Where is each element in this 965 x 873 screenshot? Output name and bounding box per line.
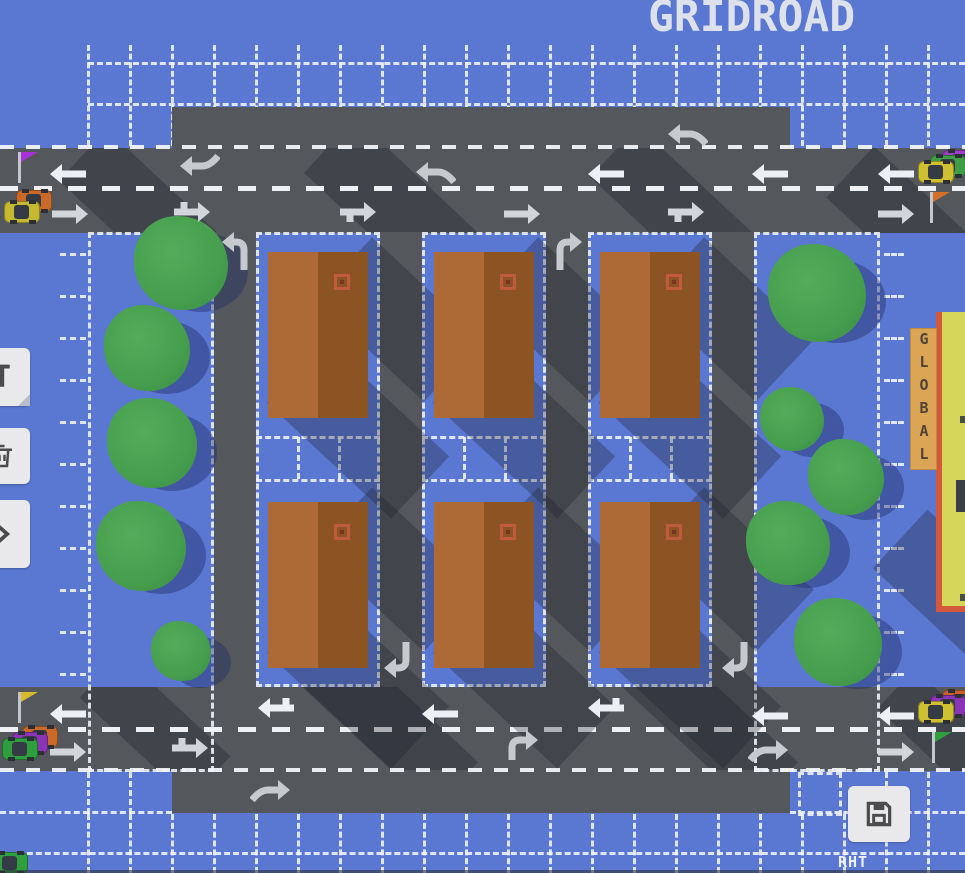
flag-pennant — [21, 152, 38, 162]
car — [2, 738, 38, 760]
car-group — [2, 726, 72, 766]
cell-divider — [297, 437, 300, 479]
grid-tick — [884, 337, 904, 340]
global-building — [936, 312, 965, 612]
grid-line — [87, 772, 90, 814]
building-vent-core — [506, 280, 510, 284]
grid-tick — [60, 463, 86, 466]
tree — [96, 501, 186, 591]
flag-pennant — [21, 692, 38, 702]
grid-line — [801, 45, 804, 146]
grid-line — [885, 45, 888, 146]
car-wheel — [0, 851, 5, 855]
grid-line — [633, 814, 636, 873]
arrow-turn-en[interactable] — [500, 722, 544, 766]
expand-button[interactable] — [0, 500, 30, 568]
car-cabin — [2, 856, 17, 870]
grid-tick — [884, 379, 904, 382]
car-wheel — [943, 180, 950, 184]
folded-corner — [18, 394, 30, 406]
cell-divider — [463, 437, 466, 479]
car-wheel — [41, 189, 48, 193]
grid-line — [843, 45, 846, 146]
car-wheel — [22, 189, 29, 193]
car-wheel — [955, 694, 962, 698]
building — [434, 252, 534, 418]
grid-line — [927, 814, 930, 873]
grid-tick — [60, 631, 86, 634]
center-line — [0, 186, 965, 191]
building — [600, 252, 700, 418]
game-title: GRIDROAD — [648, 0, 855, 42]
car-wheel — [955, 174, 962, 178]
grid-line — [255, 814, 258, 873]
car-wheel — [936, 694, 943, 698]
car-wheel — [27, 757, 34, 761]
car-wheel — [924, 700, 931, 704]
arrow-e-tick-down[interactable] — [664, 190, 708, 234]
flag-pennant — [935, 732, 952, 742]
car-wheel — [955, 154, 962, 158]
arrow-merge-w[interactable] — [664, 112, 708, 156]
grid-line — [759, 814, 762, 873]
arrow-hook-w-up[interactable] — [176, 144, 220, 188]
tree — [151, 621, 211, 681]
car — [918, 701, 954, 723]
road-edge-line — [0, 145, 965, 149]
grid-line — [465, 814, 468, 873]
building-vent-core — [672, 280, 676, 284]
save-cell[interactable] — [798, 772, 842, 816]
grid-line — [339, 814, 342, 873]
building-vent — [500, 274, 516, 290]
car-wheel — [948, 689, 955, 693]
building-window — [956, 480, 965, 512]
cell-divider — [629, 437, 632, 479]
arrow-e-tick-up[interactable] — [168, 726, 212, 770]
building-detail — [960, 594, 965, 601]
grid-line — [927, 772, 930, 814]
car-wheel — [924, 180, 931, 184]
building-vent — [666, 524, 682, 540]
building — [434, 502, 534, 668]
tree — [107, 398, 197, 488]
car-wheel — [955, 714, 962, 718]
grid-tick — [884, 295, 904, 298]
delete-button[interactable] — [0, 428, 30, 484]
text-tool-button[interactable]: T — [0, 348, 30, 406]
car-wheel — [27, 737, 34, 741]
flag-pennant — [933, 192, 950, 202]
grid-tick — [60, 379, 86, 382]
tree — [794, 598, 882, 686]
car-wheel — [18, 731, 25, 735]
arrow-merge-e[interactable] — [748, 728, 792, 772]
grid-line — [381, 814, 384, 873]
building-vent-core — [506, 530, 510, 534]
tree — [808, 439, 884, 515]
grid-line — [129, 814, 132, 873]
building-vent-core — [340, 530, 344, 534]
building — [600, 502, 700, 668]
car-wheel — [943, 720, 950, 724]
grid-line — [171, 814, 174, 873]
car-cabin — [928, 705, 943, 719]
flag-green — [930, 732, 954, 766]
car-wheel — [8, 757, 15, 761]
grid-tick — [60, 589, 86, 592]
building-vent-core — [340, 280, 344, 284]
car-wheel — [948, 149, 955, 153]
arrow-turn-ne[interactable] — [548, 228, 592, 272]
game-canvas: GRIDROAD GLOBAL T RHT — [0, 0, 965, 873]
car-wheel — [37, 751, 44, 755]
text-cursor-icon: T — [0, 360, 11, 395]
grid-line — [549, 814, 552, 873]
building-vent — [334, 274, 350, 290]
flag-purple — [16, 152, 40, 186]
arrow-merge-e[interactable] — [250, 768, 294, 812]
car — [918, 161, 954, 183]
car-group — [918, 690, 965, 730]
grid-line — [87, 45, 90, 146]
grid-tick — [60, 505, 86, 508]
car-group — [4, 190, 74, 230]
grid-tick — [60, 337, 86, 340]
grid-line — [801, 814, 804, 873]
car-wheel — [17, 851, 24, 855]
tree — [760, 387, 824, 451]
grid-tick — [60, 547, 86, 550]
grid-line — [927, 45, 930, 146]
grid-line — [129, 772, 132, 814]
car-wheel — [924, 720, 931, 724]
car-cabin — [928, 165, 943, 179]
car-wheel — [8, 737, 15, 741]
car — [4, 201, 40, 223]
car-wheel — [29, 200, 36, 204]
arrow-w-tick-up[interactable] — [584, 686, 628, 730]
car-wheel — [29, 220, 36, 224]
grid-tick — [60, 421, 86, 424]
car-cabin — [12, 742, 27, 756]
grid-tick — [884, 253, 904, 256]
tree — [746, 501, 830, 585]
car-wheel — [10, 220, 17, 224]
building-vent — [500, 524, 516, 540]
car-cabin — [14, 205, 29, 219]
arrow-w[interactable] — [874, 152, 918, 196]
arrow-e-tick-down[interactable] — [336, 190, 380, 234]
arrow-turn-sw[interactable] — [378, 640, 422, 684]
arrow-w[interactable] — [748, 152, 792, 196]
grid-line — [88, 62, 965, 65]
grid-line — [507, 814, 510, 873]
car-wheel — [41, 209, 48, 213]
grid-line — [717, 814, 720, 873]
arrow-e[interactable] — [874, 192, 918, 236]
grid-line — [675, 814, 678, 873]
building-vent — [334, 524, 350, 540]
arrow-e-tick-up[interactable] — [170, 190, 214, 234]
arrow-turn-sw[interactable] — [716, 640, 760, 684]
arrow-w-tick-up[interactable] — [254, 686, 298, 730]
arrow-e[interactable] — [500, 192, 544, 236]
chevron-right-icon — [0, 517, 16, 551]
arrow-w[interactable] — [418, 692, 462, 736]
arrow-e[interactable] — [874, 730, 918, 774]
floppy-disk-icon — [863, 798, 895, 830]
grid-line — [0, 852, 965, 855]
grid-line — [87, 814, 90, 873]
building — [268, 252, 368, 418]
grid-line — [591, 814, 594, 873]
grid-line — [0, 811, 172, 814]
building-vent — [666, 274, 682, 290]
car-wheel — [943, 700, 950, 704]
building-detail — [960, 416, 965, 423]
car-wheel — [10, 200, 17, 204]
arrow-turn-nw[interactable] — [212, 228, 256, 272]
grid-line — [423, 814, 426, 873]
grid-line — [213, 814, 216, 873]
grid-line — [129, 45, 132, 146]
grid-line — [88, 103, 965, 106]
tree — [104, 305, 190, 391]
arrow-w[interactable] — [584, 152, 628, 196]
car-wheel — [943, 160, 950, 164]
grid-tick — [60, 673, 86, 676]
building-vent-core — [672, 530, 676, 534]
flag-yellow — [16, 692, 40, 726]
car-wheel — [924, 160, 931, 164]
flag-orange — [928, 192, 952, 226]
car-group — [918, 150, 965, 190]
global-sign: GLOBAL — [910, 328, 937, 470]
save-button[interactable] — [848, 786, 910, 842]
car-wheel — [37, 731, 44, 735]
grid-line — [297, 814, 300, 873]
arrow-merge-w[interactable] — [412, 150, 456, 194]
car-wheel — [47, 725, 54, 729]
grid-tick — [60, 295, 86, 298]
building — [268, 502, 368, 668]
traffic-mode-label: RHT — [838, 853, 868, 871]
car-wheel — [936, 154, 943, 158]
car-wheel — [47, 745, 54, 749]
grid-tick — [884, 421, 904, 424]
grid-tick — [60, 253, 86, 256]
trash-icon — [0, 441, 17, 471]
